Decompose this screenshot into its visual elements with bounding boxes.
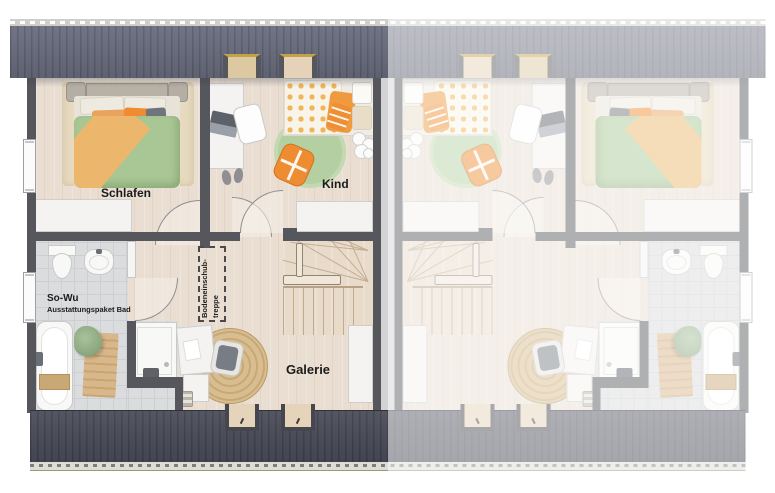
- window-symbol: [23, 139, 36, 193]
- wardrobe: [35, 199, 132, 232]
- roof-bottom: [30, 410, 388, 463]
- faded-unit-overlay: [388, 0, 775, 493]
- interior-wall: [127, 321, 136, 381]
- stair-handrail: [296, 243, 303, 277]
- stair-handrail: [283, 275, 341, 285]
- bath-package-subtitle: Ausstattungspaket Bad: [47, 305, 157, 315]
- paper-sheet: [182, 339, 201, 361]
- room-label-child: Kind: [322, 177, 382, 191]
- floorplan-canvas: Bodeneinschub- treppe Schlafen Kind: [0, 0, 775, 493]
- attic-hatch-label: Bodeneinschub- treppe: [200, 250, 224, 318]
- interior-wall: [175, 377, 183, 412]
- eaves-dashes: [30, 464, 388, 467]
- bath-caddy: [39, 374, 70, 390]
- chair-cushion: [215, 344, 239, 371]
- door-jamb: [127, 241, 136, 278]
- outer-wall-left: [27, 74, 36, 413]
- interior-wall: [200, 74, 210, 248]
- pillow: [352, 106, 372, 130]
- sink-basin: [89, 255, 109, 270]
- room-label-bedroom: Schlafen: [66, 186, 186, 200]
- house-left-unit: Bodeneinschub- treppe Schlafen Kind: [0, 0, 388, 493]
- roof-ridge-dashes: [10, 21, 388, 24]
- bath-package-title: So-Wu: [47, 293, 137, 305]
- gallery-dresser: [348, 325, 373, 403]
- duvet-throw: [74, 116, 150, 188]
- attic-hatch-label-line2: treppe: [211, 250, 222, 318]
- interior-wall: [210, 232, 240, 241]
- bathtub-basin: [41, 327, 68, 405]
- house-right-unit: [388, 0, 775, 493]
- stair-wall-stub: [283, 228, 297, 241]
- attic-hatch-label-line1: Bodeneinschub-: [200, 250, 211, 318]
- window-symbol: [23, 272, 36, 323]
- shower-drain: [164, 362, 169, 367]
- window-opening-tick: [240, 418, 244, 424]
- room-label-gallery: Galerie: [270, 362, 346, 377]
- faucet: [96, 249, 102, 254]
- plant: [74, 326, 102, 356]
- roof-window: [223, 54, 261, 78]
- interior-wall: [27, 232, 210, 241]
- stair-nosing: [283, 286, 363, 288]
- duvet: [74, 116, 180, 188]
- eaves-band: [30, 462, 388, 471]
- party-wall: [373, 74, 381, 413]
- child-dresser: [296, 201, 373, 232]
- roof-window: [281, 404, 315, 431]
- window-opening-tick: [296, 418, 300, 424]
- roof-shadow: [27, 78, 373, 87]
- roof-top: [10, 26, 388, 78]
- roof-window: [279, 54, 317, 78]
- roof-window: [225, 404, 259, 431]
